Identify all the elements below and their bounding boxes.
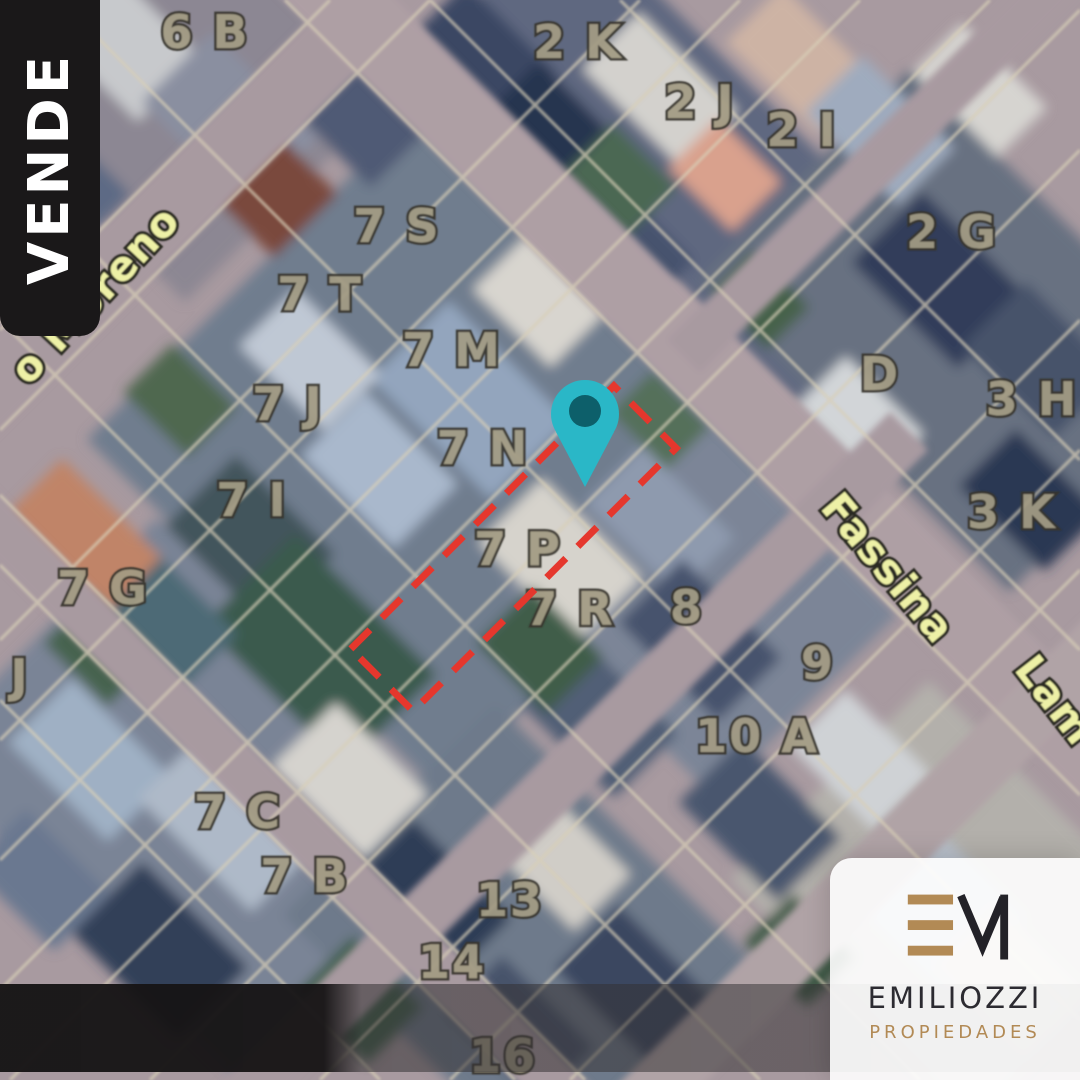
parcel-label-7p: 7 P (474, 522, 562, 576)
em-logo (896, 892, 1014, 968)
parcel-label-3h: 3 H (986, 372, 1079, 426)
real-estate-flyer: 6 B 2 K 2 J 2 I 2 G 7 S 7 T 7 M 7 J 7 N … (0, 0, 1080, 1080)
parcel-label-7c: 7 C (194, 785, 282, 839)
parcel-label-7j: 7 J (252, 377, 323, 431)
brand-tagline: PROPIEDADES (869, 1022, 1041, 1043)
em-logo-e-bar-top (908, 895, 953, 905)
parcel-label-6b: 6 B (160, 5, 249, 59)
vende-label: VENDE (18, 51, 83, 284)
vende-banner: VENDE (0, 0, 100, 336)
parcel-label-2k: 2 K (533, 15, 623, 69)
parcel-label-8: 8 (670, 580, 704, 634)
em-logo-m-vertical (1000, 895, 1008, 960)
parcel-label-7r: 7 R (525, 582, 614, 636)
parcel-label-7s: 7 S (353, 199, 440, 253)
parcel-label-13: 13 (476, 873, 544, 927)
parcel-label-10a: 10 A (695, 709, 819, 763)
em-logo-m-stroke (961, 896, 1003, 947)
parcel-label-j: J (7, 649, 29, 703)
parcel-label-7g: 7 G (57, 561, 149, 615)
parcel-label-2g: 2 G (906, 205, 998, 259)
em-logo-e-bar-bottom (908, 946, 953, 956)
brand-card: EMILIOZZI PROPIEDADES (830, 858, 1080, 1080)
parcel-label-9: 9 (801, 636, 835, 690)
parcel-label-7m: 7 M (402, 323, 502, 377)
map-pin-hole (569, 395, 601, 427)
parcel-label-7n: 7 N (437, 421, 530, 475)
parcel-label-7b: 7 B (260, 849, 349, 903)
parcel-label-7i: 7 I (216, 473, 287, 527)
em-logo-e-bar-mid (908, 920, 953, 930)
parcel-label-14: 14 (418, 935, 486, 989)
parcel-label-2j: 2 J (664, 75, 735, 129)
parcel-label-d: D (860, 347, 900, 401)
parcel-label-7t: 7 T (277, 267, 362, 321)
brand-name: EMILIOZZI (868, 981, 1043, 1015)
parcel-label-2i: 2 I (766, 103, 837, 157)
parcel-label-3k: 3 K (967, 485, 1057, 539)
